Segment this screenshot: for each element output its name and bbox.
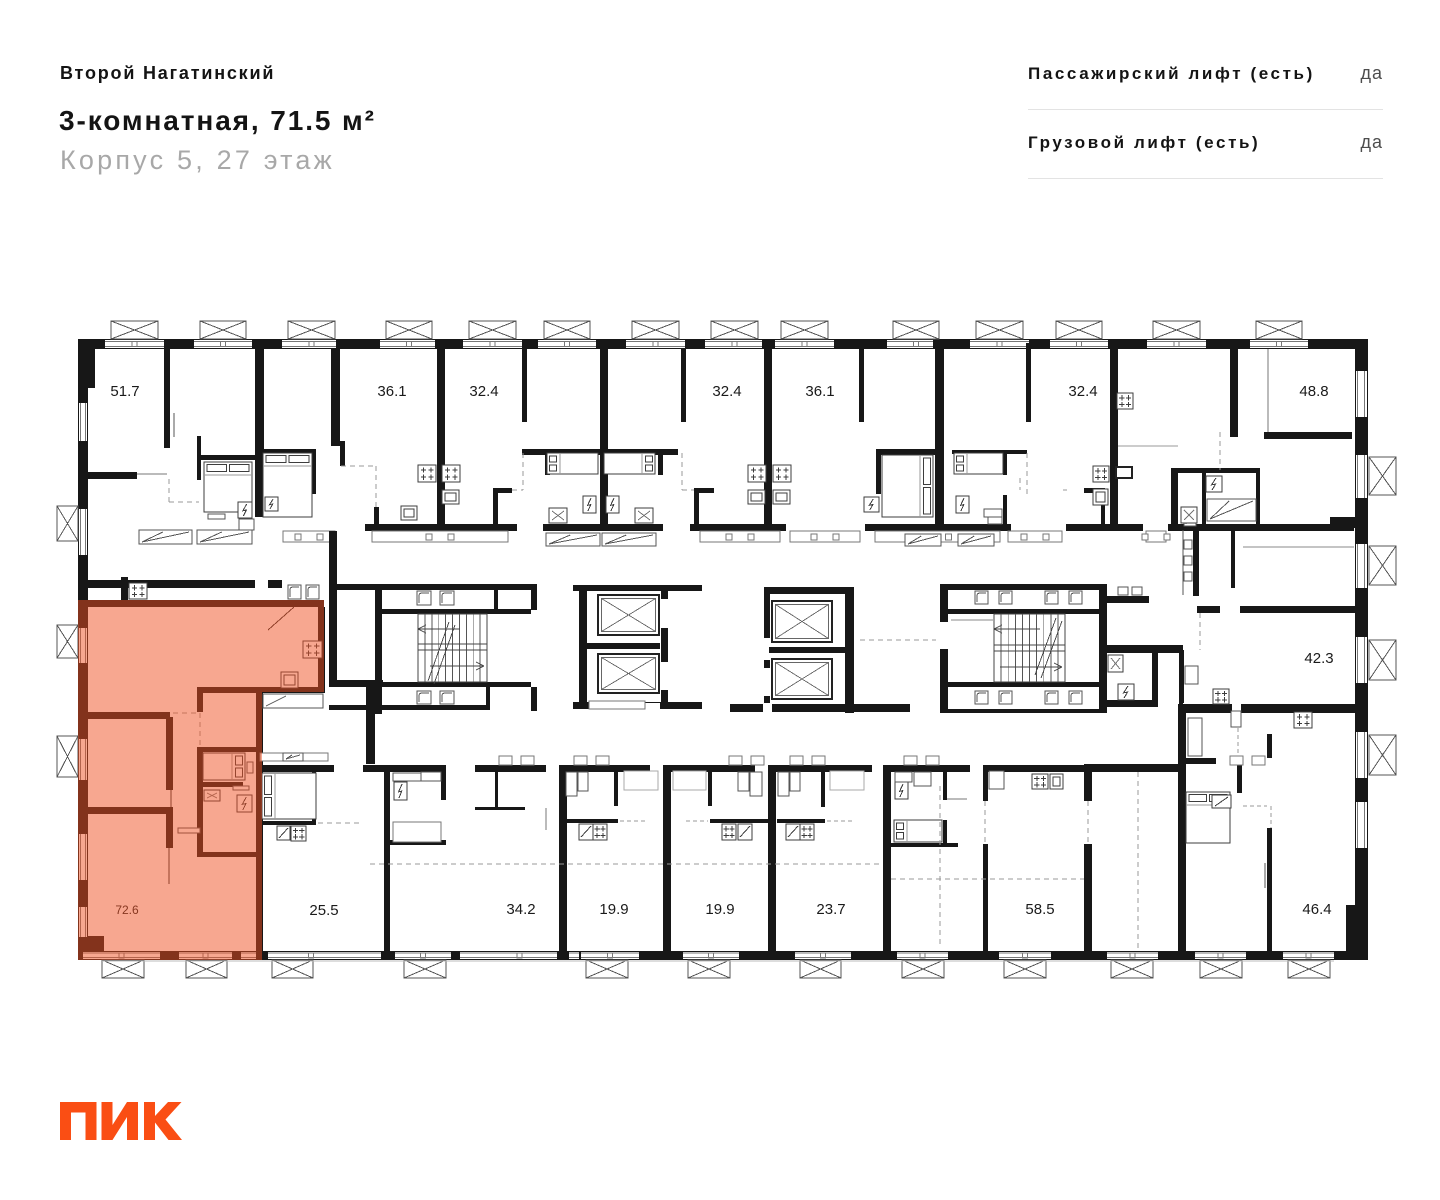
svg-text:48.8: 48.8 bbox=[1299, 383, 1328, 400]
svg-text:25.5: 25.5 bbox=[309, 902, 338, 919]
svg-text:58.5: 58.5 bbox=[1025, 901, 1054, 918]
svg-text:36.1: 36.1 bbox=[805, 383, 834, 400]
svg-text:36.1: 36.1 bbox=[377, 383, 406, 400]
svg-text:32.4: 32.4 bbox=[1068, 383, 1097, 400]
svg-text:23.7: 23.7 bbox=[816, 901, 845, 918]
svg-text:32.4: 32.4 bbox=[712, 383, 741, 400]
svg-text:34.2: 34.2 bbox=[506, 901, 535, 918]
svg-text:19.9: 19.9 bbox=[599, 901, 628, 918]
svg-text:42.3: 42.3 bbox=[1304, 650, 1333, 667]
svg-text:51.7: 51.7 bbox=[110, 383, 139, 400]
svg-text:46.4: 46.4 bbox=[1302, 901, 1331, 918]
svg-text:19.9: 19.9 bbox=[705, 901, 734, 918]
svg-text:32.4: 32.4 bbox=[469, 383, 498, 400]
